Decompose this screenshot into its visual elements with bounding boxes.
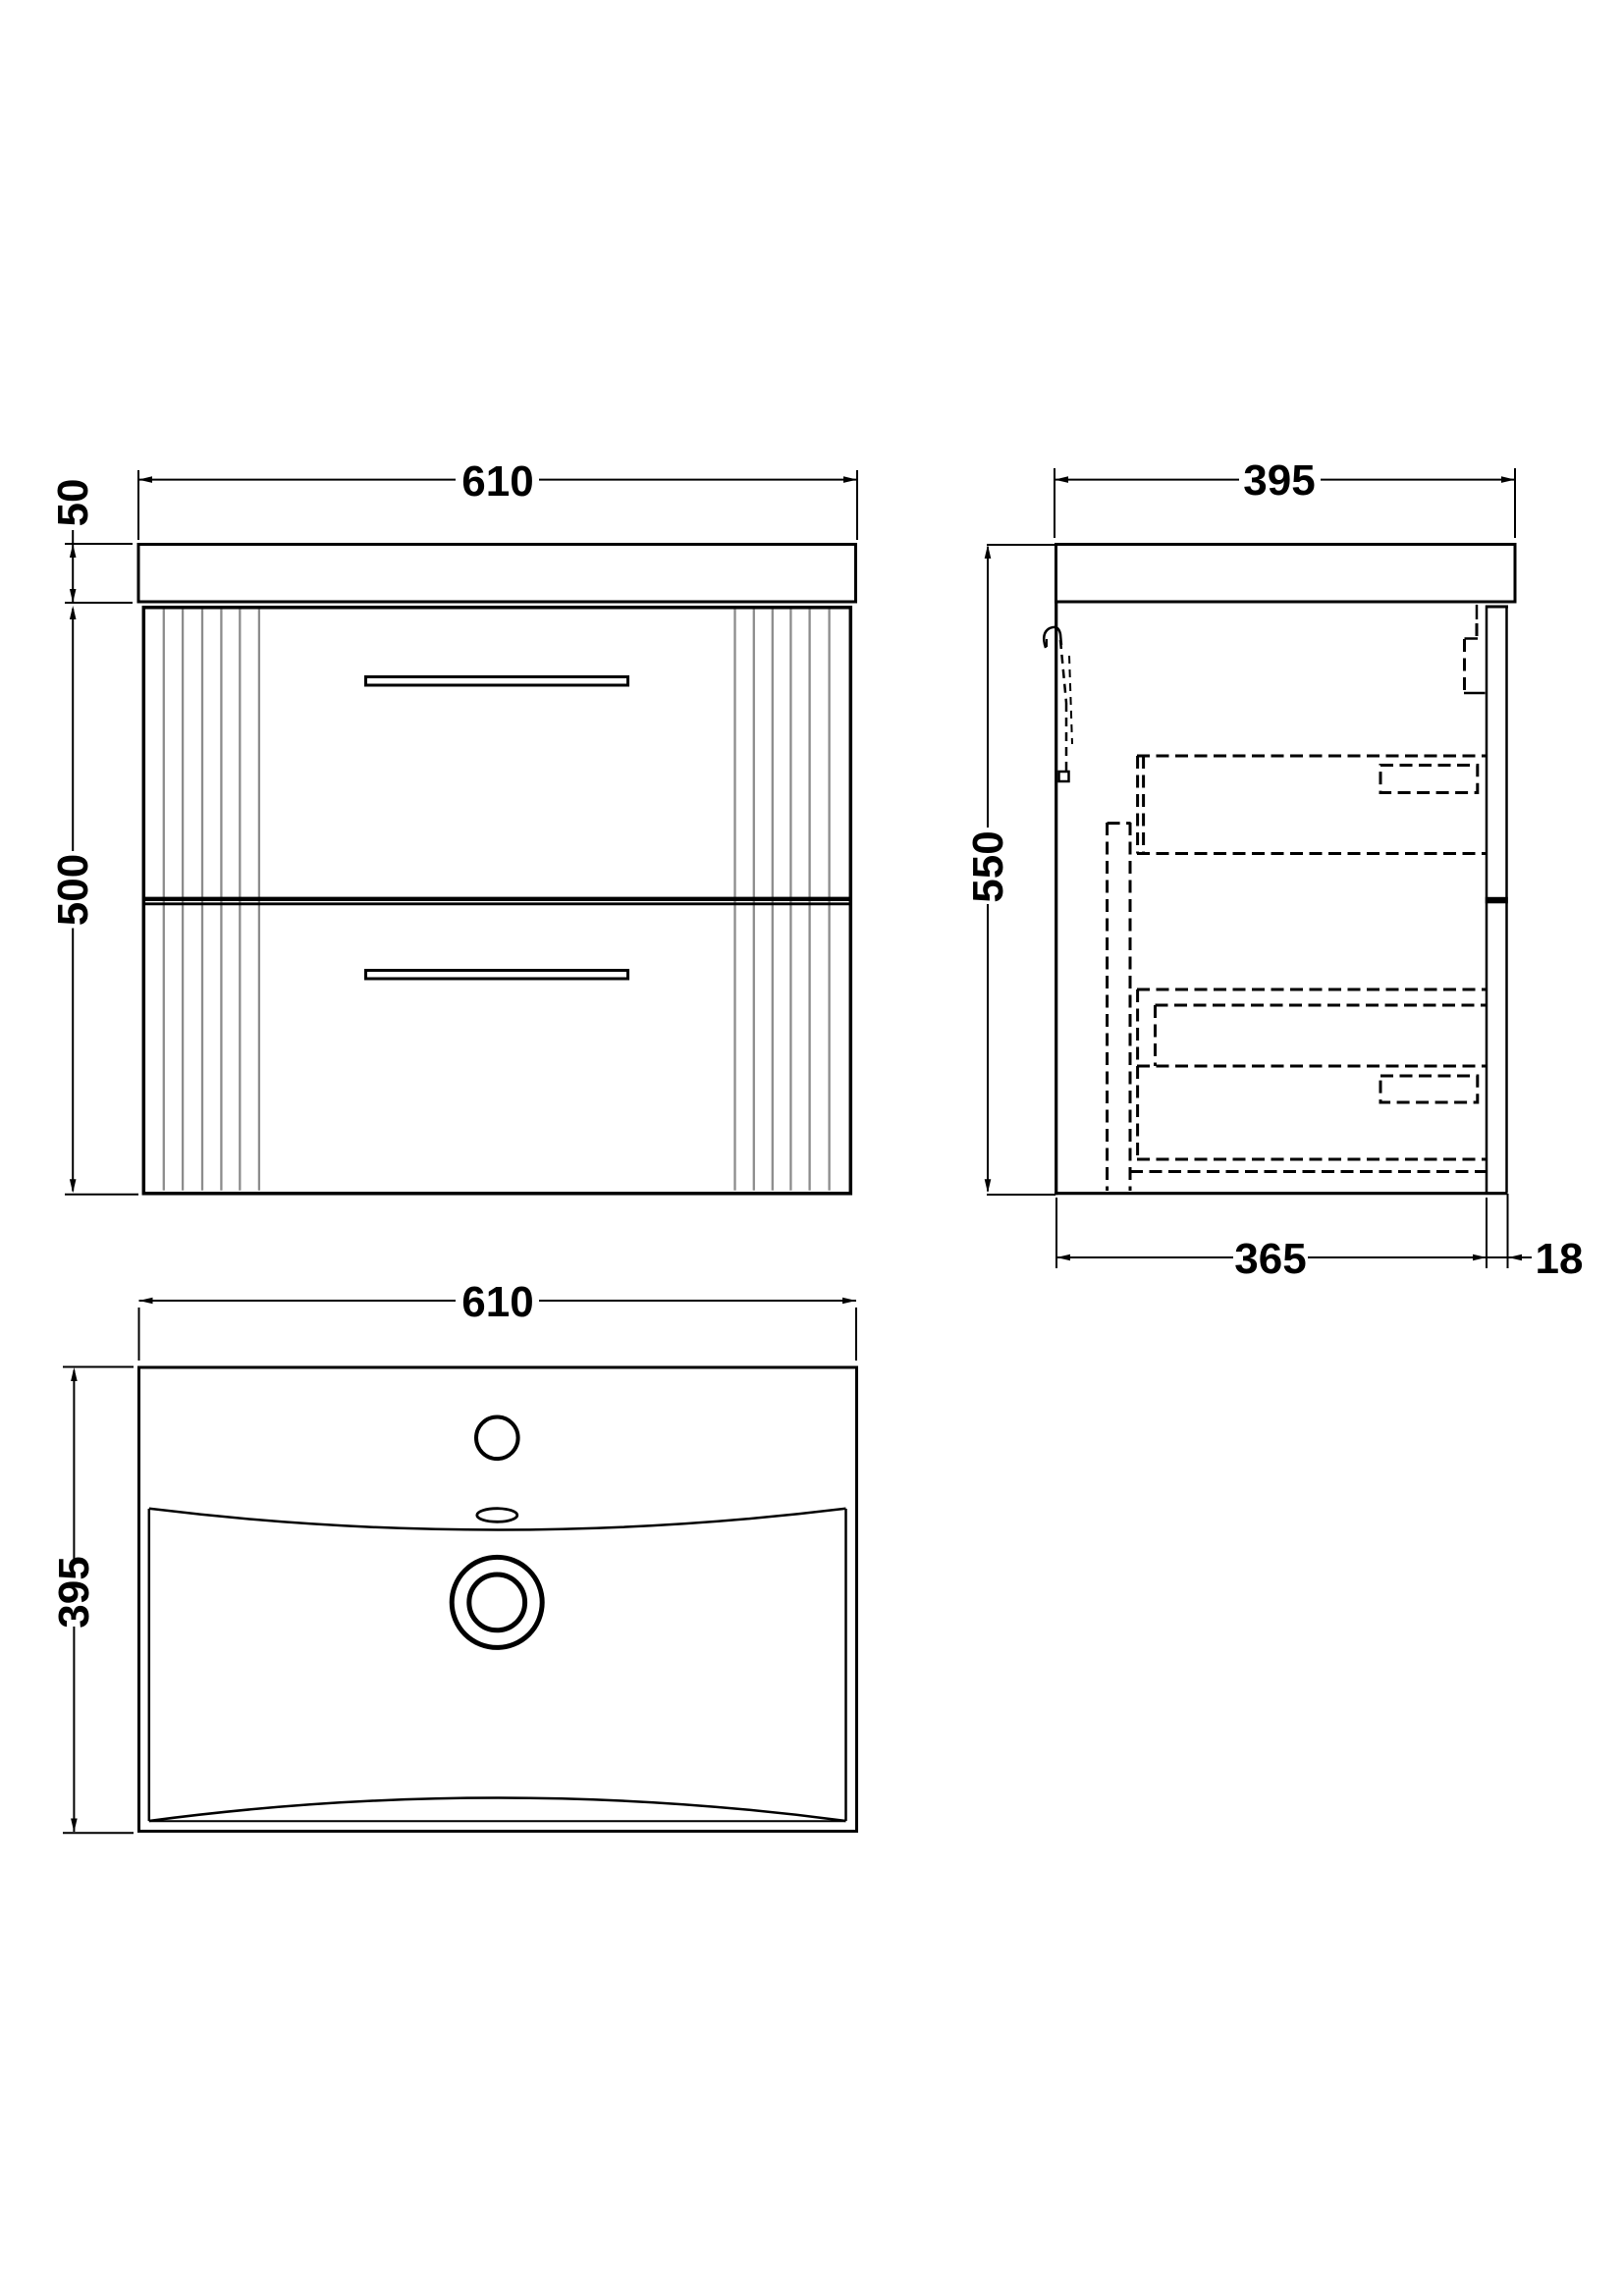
svg-text:365: 365	[1234, 1235, 1306, 1283]
svg-text:550: 550	[964, 830, 1012, 902]
svg-text:610: 610	[461, 457, 533, 506]
svg-text:395: 395	[50, 1556, 98, 1628]
svg-text:610: 610	[461, 1278, 533, 1326]
svg-text:395: 395	[1243, 456, 1315, 505]
svg-text:50: 50	[49, 479, 97, 527]
svg-text:18: 18	[1536, 1235, 1584, 1283]
svg-text:500: 500	[49, 854, 97, 926]
